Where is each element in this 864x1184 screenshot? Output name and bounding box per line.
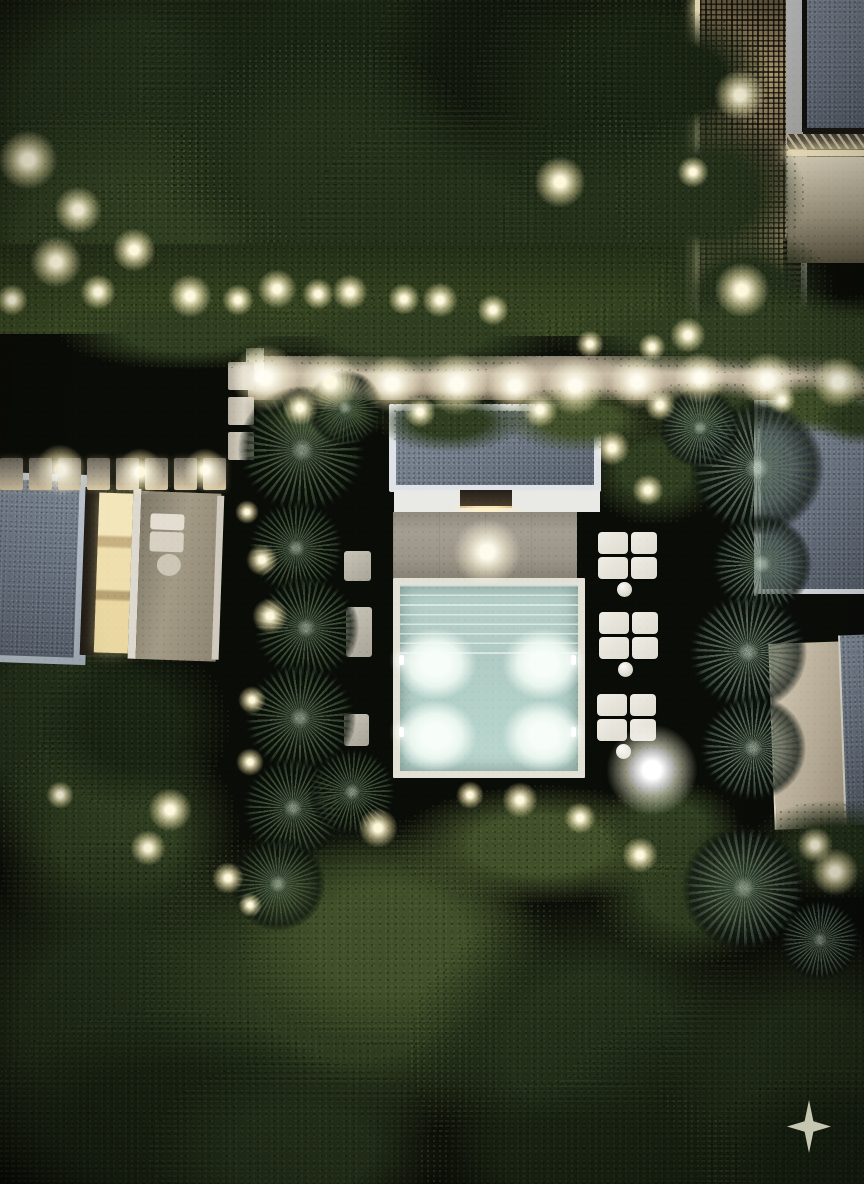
tree-canopy (140, 0, 540, 250)
tree-canopy (420, 1080, 740, 1184)
tree-canopy (150, 1060, 450, 1184)
tree-canopy (140, 815, 570, 1145)
palm-tree (780, 900, 860, 980)
garden-light (235, 500, 259, 524)
lounger-cushion (630, 694, 656, 716)
armchair-back (150, 513, 185, 530)
tree-canopy (585, 415, 725, 525)
garden-light (534, 156, 586, 208)
garden-light (502, 782, 538, 818)
tree-canopy (395, 785, 685, 905)
palm-tree (660, 388, 740, 468)
aerial-villa-night-render (0, 0, 864, 1184)
cream-wall (768, 641, 848, 829)
pavilion-gravel-roof (396, 411, 594, 485)
garden-light (148, 788, 192, 832)
tree-canopy (410, 895, 780, 1184)
tree-canopy (0, 720, 240, 950)
garden-wall (248, 356, 864, 400)
lounger-cushion (630, 719, 656, 741)
stone-deck (393, 512, 577, 578)
tree-canopy (590, 815, 800, 965)
gravel-roof-right (761, 407, 864, 589)
palm-tree (253, 575, 359, 681)
tree-canopy (0, 840, 340, 1184)
palm-tree (248, 500, 344, 596)
garden-light (606, 724, 698, 816)
gravel-roof-left-villa (0, 479, 80, 658)
garden-light (130, 830, 166, 866)
garden-light (236, 748, 264, 776)
dark-courtyard (0, 334, 252, 484)
lit-interior-windows (94, 492, 134, 653)
side-table (618, 662, 633, 677)
garden-light (622, 837, 658, 873)
tree-canopy (550, 995, 864, 1184)
lounger-slab (346, 607, 372, 657)
garden-light (54, 186, 102, 234)
pool-steps (400, 585, 578, 655)
garden-light (246, 544, 278, 576)
garden-light (46, 781, 74, 809)
garden-light (811, 848, 859, 896)
garden-light (0, 130, 58, 190)
garden-light (456, 781, 484, 809)
left-villa-building (0, 468, 230, 676)
lounger-cushion (632, 612, 658, 634)
eave-light-strip (787, 150, 864, 156)
wall-shadow-strip (248, 336, 864, 358)
lounger-slab (344, 714, 369, 746)
tree-canopy (370, 0, 630, 210)
tree-canopy (0, 1010, 360, 1184)
lounger-set (599, 612, 659, 680)
garden-light (238, 893, 262, 917)
tree-canopy (700, 1070, 864, 1184)
garden-light (358, 808, 398, 848)
armchair-seat (149, 531, 184, 552)
lounger-cushion (598, 557, 628, 579)
palm-tree (238, 386, 366, 514)
garden-wall-corner (246, 348, 264, 382)
palm-tree (242, 757, 344, 859)
lounger-cushion (632, 637, 658, 659)
lounger-cushion (597, 694, 627, 716)
cream-wall-topright (787, 157, 864, 263)
side-table (617, 582, 632, 597)
tree-canopy (660, 930, 864, 1184)
lounger-cushion (631, 557, 657, 579)
louver-band (787, 134, 864, 149)
lounger-slab (344, 551, 371, 581)
lounger-cushion (599, 612, 629, 634)
garden-light (797, 827, 833, 863)
lounger-cushion (631, 532, 657, 554)
palm-tree (308, 748, 396, 836)
lounger-set (598, 532, 658, 600)
cream-villa-building (768, 633, 864, 832)
tree-canopy (240, 835, 540, 1045)
lounger-set (597, 694, 657, 762)
garden-light (632, 474, 664, 506)
sparkle-watermark-icon (787, 1100, 831, 1153)
lattice-screen-roof (700, 0, 786, 338)
palm-tree (682, 826, 806, 950)
garden-light (252, 598, 288, 634)
gravel-roof-topright (807, 0, 864, 130)
tree-canopy (600, 780, 740, 870)
lounger-cushion (598, 532, 628, 554)
palm-tree (244, 662, 356, 774)
garden-light (238, 686, 266, 714)
side-table (616, 744, 631, 759)
lounger-cushion (599, 637, 629, 659)
palm-tree (231, 837, 325, 931)
garden-light (564, 802, 596, 834)
lounger-cushion (597, 719, 627, 741)
garden-light (212, 862, 244, 894)
